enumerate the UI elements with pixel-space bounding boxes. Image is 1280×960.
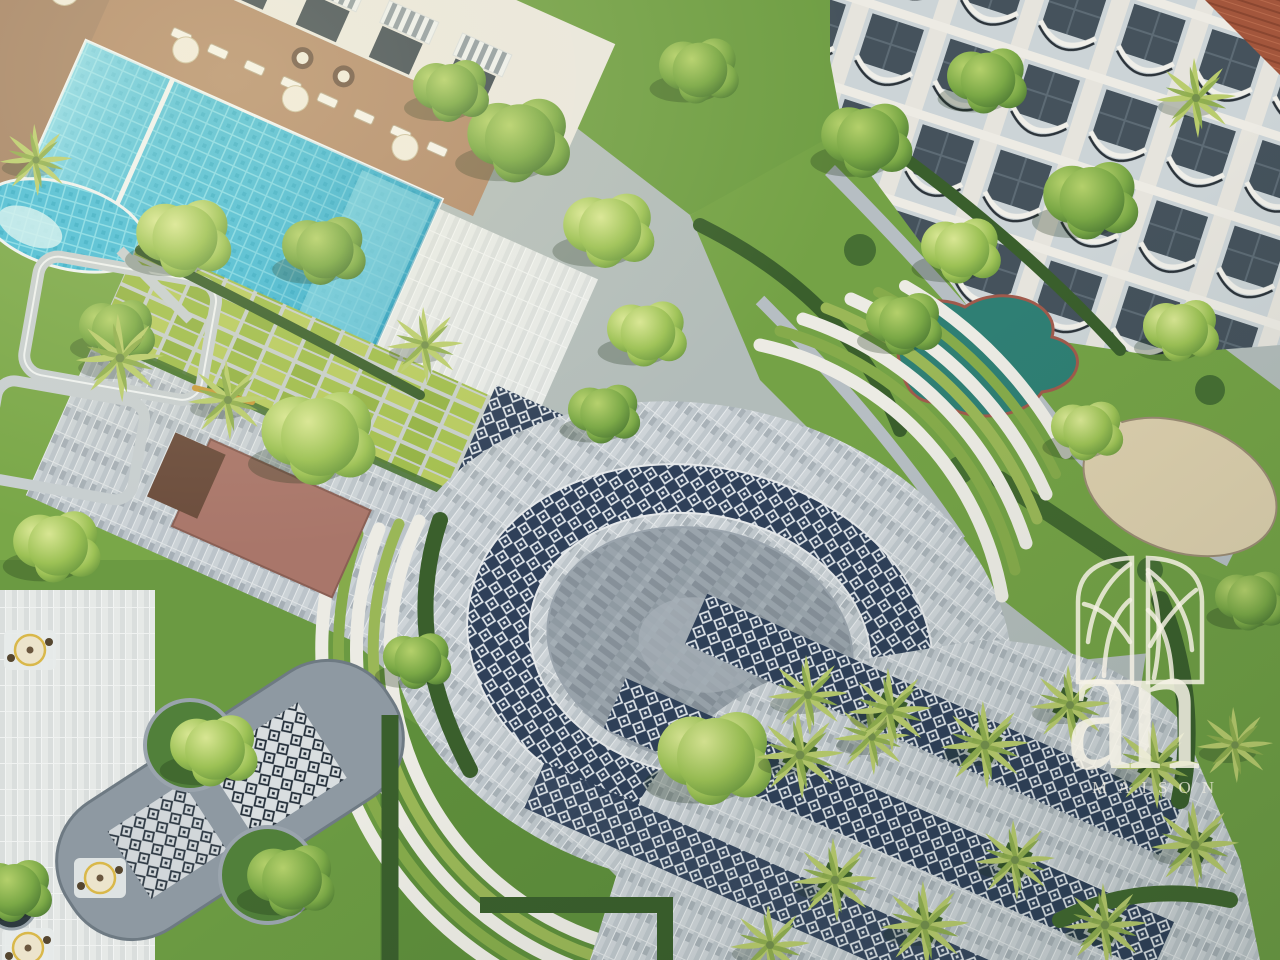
corner-shade [0,0,1280,960]
landscape-illustration [0,0,1280,960]
aerial-courtyard-render: an MAISON [0,0,1280,960]
